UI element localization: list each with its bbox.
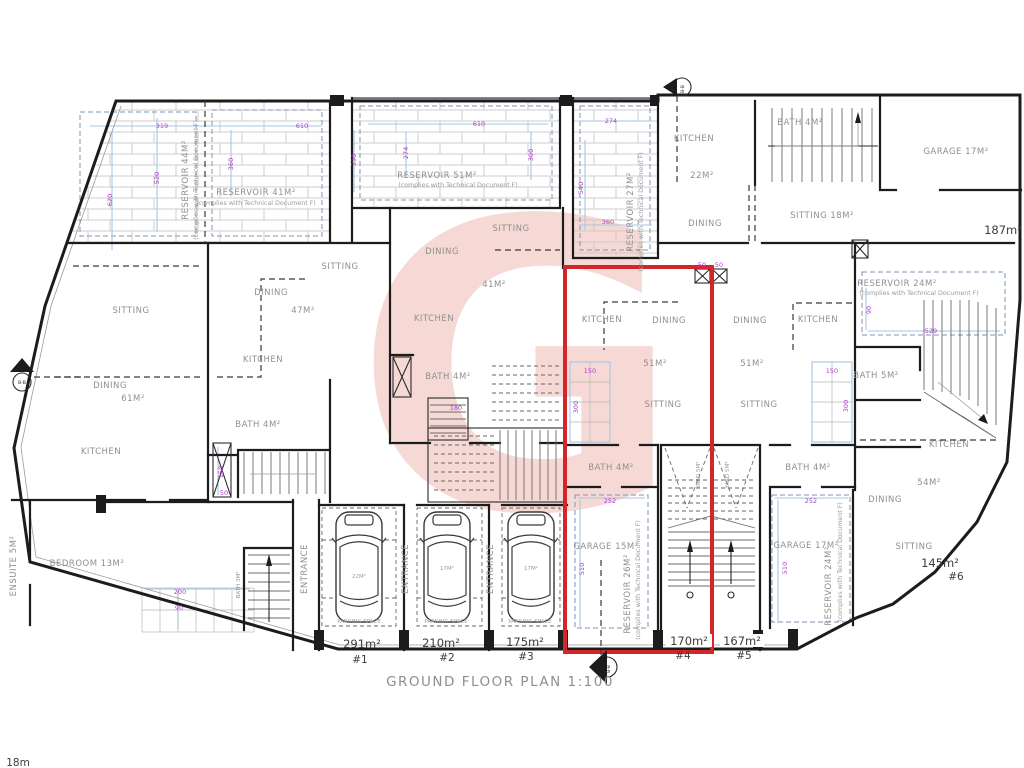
- reservoir-r41-note: (complies with Technical Document F): [196, 200, 316, 207]
- reservoir-r24-top-note: (complies with Technical Document F): [859, 290, 979, 297]
- room-label-u3-kitchen: KITCHEN: [414, 314, 454, 324]
- stair-unit1: [244, 452, 325, 494]
- section-marker-bottom-label: B-B: [606, 665, 612, 673]
- section-marker-top-label: B-B: [680, 85, 686, 93]
- corner-scale-note: 18m: [6, 757, 30, 768]
- floor-plan-canvas: G: [0, 0, 1024, 768]
- dim-360-b: 360: [602, 218, 614, 226]
- dim-274-a: 274: [402, 147, 410, 159]
- parking-space-label-1: PARKING SPACE: [337, 619, 381, 625]
- reservoir-r44-note: (complies with Technical Document F): [193, 120, 200, 240]
- room-label-u1-bath: BATH 3M²: [235, 572, 242, 599]
- room-label-u6-dining: DINING: [868, 495, 902, 505]
- room-label-u4-kitchen: KITCHEN: [582, 315, 622, 325]
- room-label-u2-kitchen: KITCHEN: [243, 355, 283, 365]
- room-label-tr-garage: GARAGE 17M²: [923, 147, 988, 157]
- room-label-u2-dining: DINING: [254, 288, 288, 298]
- room-label-u4-yard: YARD 5M²: [695, 462, 702, 490]
- dim-610-b: 610: [473, 120, 485, 128]
- unit-area-6: 145m²: [921, 556, 959, 570]
- room-label-u3-bath: BATH 4M²: [425, 372, 470, 382]
- entrance-label-3: ENTRANCE: [486, 544, 496, 594]
- room-label-u6-sitting: SITTING: [895, 542, 932, 552]
- unit-number-3: #3: [518, 651, 533, 663]
- room-label-tr-sitting: SITTING 18M²: [790, 211, 854, 221]
- dim-200: 200: [174, 588, 186, 596]
- dim-610-a: 610: [296, 122, 308, 130]
- dim-510-b: 510: [781, 562, 789, 574]
- room-label-u4-bath: BATH 4M²: [588, 463, 633, 473]
- room-label-u4-dining: DINING: [652, 316, 686, 326]
- unit-number-1: #1: [352, 654, 367, 666]
- dim-510-a: 510: [578, 563, 586, 575]
- reservoir-r24-right-note: (complies with Technical Document F): [837, 502, 844, 622]
- unit-area-4: 170m²: [670, 634, 708, 648]
- dim-319: 319: [156, 122, 168, 130]
- room-label-u2-bath: BATH 4M²: [235, 420, 280, 430]
- room-label-u1-ensuite: ENSUITE 5M²: [9, 536, 19, 597]
- unit-number-5: #5: [736, 650, 751, 662]
- unit-area-2: 210m²: [422, 636, 460, 650]
- plan-title: GROUND FLOOR PLAN 1:100: [386, 674, 614, 690]
- unit-number-2: #2: [439, 652, 454, 664]
- dim-150-a: 150: [584, 367, 596, 375]
- room-label-u5-garage: GARAGE 17M²: [773, 541, 838, 551]
- room-label-u5-kitchen: KITCHEN: [798, 315, 838, 325]
- dim-300-c: 300: [842, 400, 850, 412]
- dim-252-b: 252: [805, 497, 817, 505]
- room-label-u1-kitchen: KITCHEN: [81, 447, 121, 457]
- reservoir-r41-label: RESERVOIR 41M²: [216, 188, 296, 198]
- dim-300-b: 300: [572, 401, 580, 413]
- section-marker-left-label: B-B: [18, 380, 26, 386]
- dim-90-b: 90: [175, 604, 183, 612]
- floor-plan-page: G: [0, 0, 1024, 768]
- car-area-label-2: 17M²: [440, 565, 454, 572]
- unit-number-6: #6: [948, 571, 964, 583]
- reservoir-r27-label: RESERVOIR 27M²: [626, 172, 636, 252]
- dim-274-b: 274: [605, 117, 617, 125]
- room-label-u1-dining: DINING: [93, 381, 127, 391]
- car-1: [332, 512, 386, 622]
- dim-620: 620: [106, 194, 114, 206]
- room-label-u3-dining: DINING: [425, 247, 459, 257]
- dim-252-a: 252: [604, 497, 616, 505]
- unit-area-tr: 187m²: [984, 223, 1022, 237]
- entrance-label-1: ENTRANCE: [300, 544, 310, 594]
- room-label-u2-dining-area: 47M²: [291, 306, 315, 316]
- room-label-u1-sitting: SITTING: [112, 306, 149, 316]
- room-label-u4-sitting: SITTING: [644, 400, 681, 410]
- room-label-u5-area: 51M²: [740, 359, 764, 369]
- stair-right-winder: [924, 300, 996, 438]
- unit-number-4: #4: [675, 650, 691, 662]
- car-area-label-3: 17M²: [524, 565, 538, 572]
- dim-50-b: 50: [698, 261, 706, 269]
- unit-area-1: 291m²: [343, 637, 381, 651]
- entrance-label-2: ENTRANCE: [401, 544, 411, 594]
- dim-390: 390: [350, 154, 358, 166]
- reservoir-r51-label: RESERVOIR 51M²: [397, 171, 477, 181]
- car-area-label-1: 22M²: [352, 573, 366, 580]
- dim-50-c: 50: [715, 261, 723, 269]
- unit-area-5: 167m²: [723, 634, 761, 648]
- room-label-u1-dining-area: 61M²: [121, 394, 145, 404]
- room-label-u1-bedroom: BEDROOM 13M²: [50, 559, 125, 569]
- dim-300-a: 300: [527, 149, 535, 161]
- parking-space-label-2: PARKING SPACE: [424, 619, 468, 625]
- room-label-tr-kitchen: KITCHEN: [674, 134, 714, 144]
- reservoir-r24-right-label: RESERVOIR 24M²: [824, 546, 834, 626]
- room-label-u6-area: 54M²: [917, 478, 941, 488]
- room-label-u5-dining: DINING: [733, 316, 767, 326]
- room-label-u2-sitting: SITTING: [321, 262, 358, 272]
- reservoir-r51-note: (complies with Technical Document F): [398, 182, 518, 189]
- dim-180: 180: [450, 404, 462, 412]
- room-label-u4-area: 51M²: [643, 359, 667, 369]
- dim-150-c: 150: [217, 466, 225, 478]
- dim-360-a: 360: [227, 158, 235, 170]
- room-label-tr-area: 22M²: [690, 171, 714, 181]
- room-label-u6-kitchen: KITCHEN: [929, 440, 969, 450]
- room-label-u3-dining-area: 41M²: [482, 280, 506, 290]
- reservoir-r26-label: RESERVOIR 26M²: [623, 554, 633, 634]
- reservoir-r26-note: (complies with Technical Document F): [635, 520, 642, 640]
- room-label-u5-yard: YARD 5M²: [724, 462, 731, 490]
- room-label-tr-dining: DINING: [688, 219, 722, 229]
- reservoir-r44-label: RESERVOIR 44M²: [181, 140, 191, 220]
- room-label-u3-sitting: SITTING: [492, 224, 529, 234]
- parking-space-label-3: PARKING SPACE: [508, 619, 552, 625]
- room-label-u5-bath5: BATH 5M²: [853, 371, 898, 381]
- room-label-tr-bath: BATH 4M²: [777, 118, 822, 128]
- dim-90-a: 90: [865, 306, 873, 314]
- room-label-u5-sitting: SITTING: [740, 400, 777, 410]
- room-label-u4-garage: GARAGE 15M²: [573, 542, 638, 552]
- reservoir-r27-note: (complies with Technical Document F): [638, 152, 645, 272]
- room-label-u5-bath: BATH 4M²: [785, 463, 830, 473]
- reservoir-r24-top-label: RESERVOIR 24M²: [857, 279, 937, 289]
- dim-50-a: 50: [220, 489, 228, 497]
- dim-150-b: 150: [826, 367, 838, 375]
- dim-529: 529: [925, 327, 937, 335]
- dim-540: 540: [577, 182, 585, 194]
- dim-520: 520: [153, 172, 161, 184]
- unit-area-3: 175m²: [506, 635, 544, 649]
